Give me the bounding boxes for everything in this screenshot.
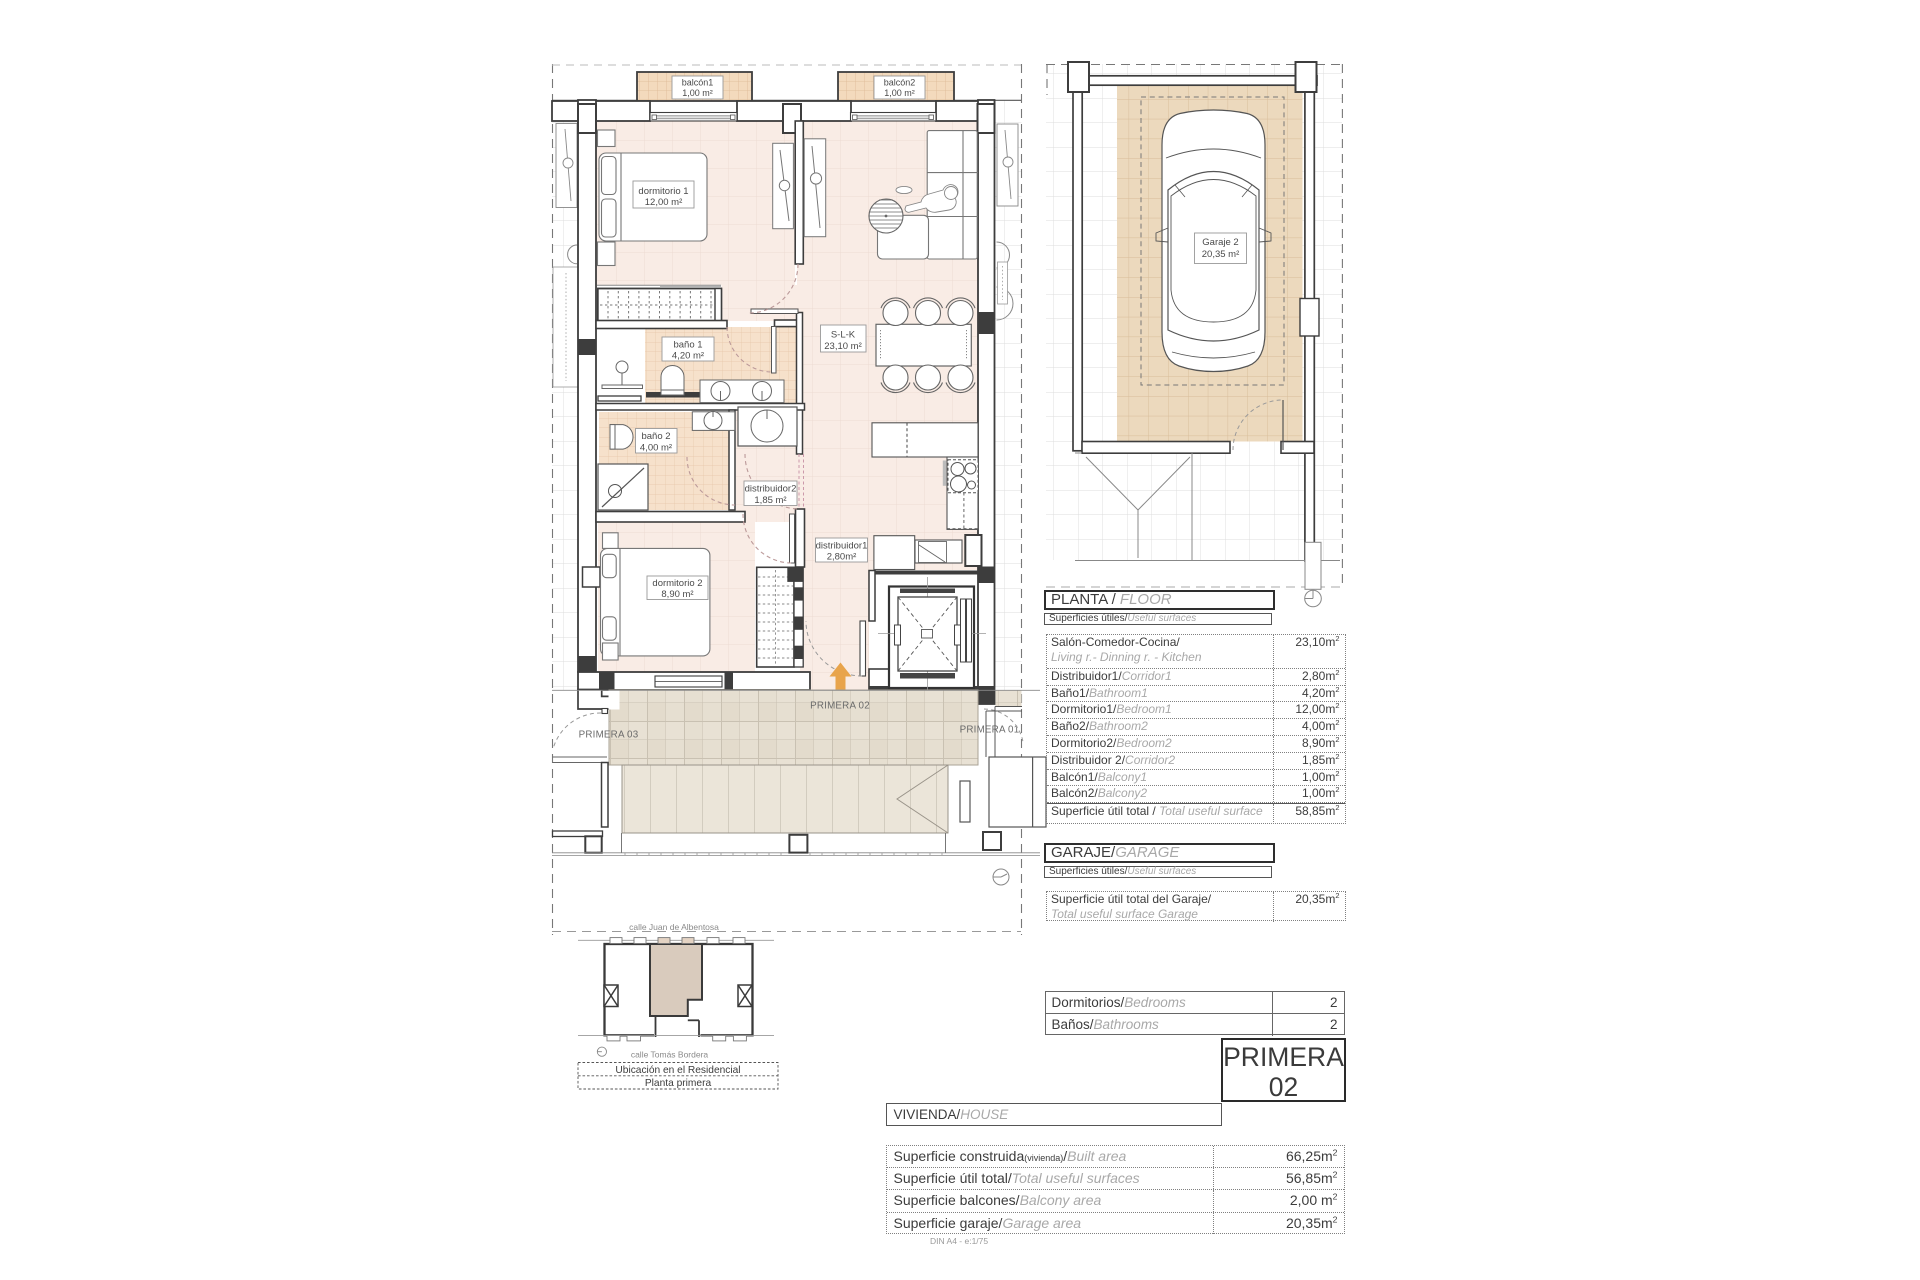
svg-text:baño 1: baño 1 [673,340,702,351]
svg-text:balcón1: balcón1 [682,78,714,88]
svg-text:PRIMERA 02: PRIMERA 02 [810,701,870,712]
svg-text:4,20 m²: 4,20 m² [672,351,704,362]
svg-text:1,85 m²: 1,85 m² [754,495,786,506]
svg-text:distribuidor2: distribuidor2 [745,484,797,495]
svg-text:1,00 m²: 1,00 m² [884,88,915,98]
svg-text:23,10 m²: 23,10 m² [824,341,862,352]
svg-text:8,90 m²: 8,90 m² [661,589,693,600]
svg-text:2,80m²: 2,80m² [827,552,857,563]
svg-text:Planta primera: Planta primera [645,1078,712,1089]
svg-text:PRIMERA 01: PRIMERA 01 [960,725,1020,736]
svg-text:calle Tomás Bordera: calle Tomás Bordera [631,1050,709,1060]
svg-text:4,00 m²: 4,00 m² [640,443,672,454]
svg-text:12,00 m²: 12,00 m² [645,197,683,208]
svg-text:PRIMERA 03: PRIMERA 03 [579,730,639,741]
svg-text:S-L-K: S-L-K [831,330,856,341]
svg-text:dormitorio 2: dormitorio 2 [652,578,702,589]
svg-text:Ubicación en el Residencial: Ubicación en el Residencial [615,1065,740,1076]
svg-text:dormitorio 1: dormitorio 1 [638,186,688,197]
svg-text:balcón2: balcón2 [884,78,916,88]
svg-text:20,35 m²: 20,35 m² [1202,249,1240,260]
svg-text:1,00 m²: 1,00 m² [682,88,713,98]
svg-text:Garaje 2: Garaje 2 [1202,237,1238,248]
svg-text:distribuidor1: distribuidor1 [816,541,868,552]
svg-text:baño 2: baño 2 [641,431,670,442]
svg-text:calle Juan de Albentosa: calle Juan de Albentosa [629,922,719,932]
